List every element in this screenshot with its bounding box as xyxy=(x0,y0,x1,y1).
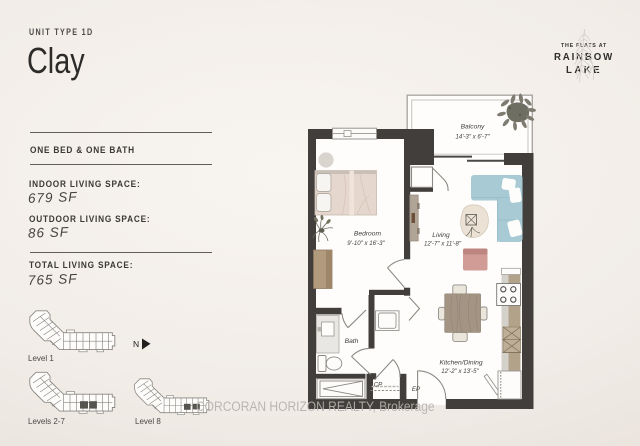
svg-text:Bath: Bath xyxy=(345,338,359,345)
svg-text:Bedroom: Bedroom xyxy=(354,231,382,238)
svg-text:Balcony: Balcony xyxy=(461,124,485,131)
svg-text:12'-2" x 13'-5": 12'-2" x 13'-5" xyxy=(441,368,479,375)
svg-text:N: N xyxy=(133,339,139,349)
svg-text:CP: CP xyxy=(374,382,383,389)
svg-text:Kitchen/Dining: Kitchen/Dining xyxy=(439,360,482,367)
svg-text:9'-10" x 16'-3": 9'-10" x 16'-3" xyxy=(347,240,385,247)
svg-text:14'-3" x 6'-7": 14'-3" x 6'-7" xyxy=(455,134,490,141)
svg-text:EP: EP xyxy=(412,386,421,393)
svg-text:12'-7" x 11'-8": 12'-7" x 11'-8" xyxy=(424,241,462,248)
svg-text:Living: Living xyxy=(432,232,450,239)
